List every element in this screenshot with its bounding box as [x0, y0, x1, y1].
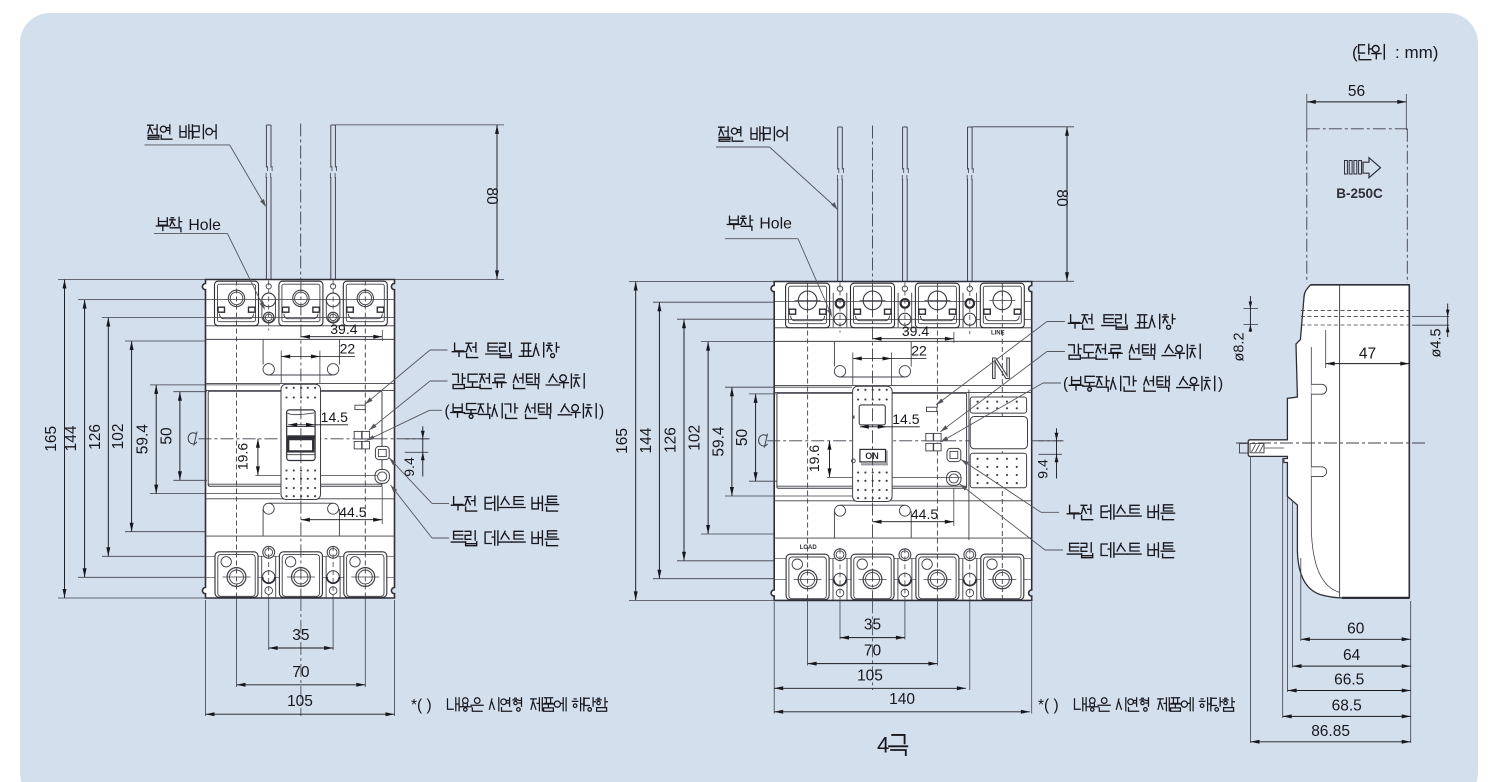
svg-text:39.4: 39.4 [902, 323, 929, 339]
svg-text:66.5: 66.5 [1334, 672, 1364, 689]
svg-text:60: 60 [1347, 620, 1365, 637]
svg-text:Hole: Hole [759, 215, 792, 232]
svg-text:(: ( [445, 403, 451, 420]
svg-text:59.4: 59.4 [710, 426, 727, 457]
svg-text:): ) [599, 403, 604, 420]
svg-text:140: 140 [889, 691, 915, 708]
svg-text:50: 50 [158, 427, 175, 445]
svg-text:35: 35 [864, 617, 881, 634]
svg-text:126: 126 [87, 424, 104, 450]
svg-text:ø8.2: ø8.2 [1232, 332, 1248, 361]
svg-text:19.6: 19.6 [234, 443, 250, 470]
svg-text:80: 80 [1053, 189, 1070, 207]
svg-text:*( ): *( ) [411, 697, 432, 714]
svg-text:68.5: 68.5 [1332, 697, 1362, 714]
svg-text:165: 165 [614, 428, 631, 454]
svg-text:9.4: 9.4 [1035, 459, 1051, 479]
svg-text:(: ( [1063, 376, 1069, 393]
svg-text:44.5: 44.5 [911, 506, 938, 522]
svg-text:70: 70 [864, 643, 882, 660]
svg-text:102: 102 [110, 423, 127, 449]
svg-text:64: 64 [1343, 647, 1361, 664]
svg-text:86.85: 86.85 [1311, 723, 1350, 740]
svg-text:ON: ON [865, 451, 879, 461]
svg-text:47: 47 [1359, 346, 1376, 363]
svg-text:50: 50 [734, 429, 751, 447]
svg-text:LINE: LINE [991, 331, 1005, 337]
svg-text:59.4: 59.4 [135, 424, 152, 455]
svg-text:80: 80 [483, 187, 500, 205]
svg-text:105: 105 [287, 693, 313, 710]
svg-text:14.5: 14.5 [892, 411, 919, 427]
svg-text:: mm): : mm) [1395, 43, 1438, 62]
svg-text:): ) [1218, 376, 1223, 393]
svg-text:144: 144 [638, 427, 655, 453]
svg-text:LOAD: LOAD [800, 545, 818, 551]
svg-text:102: 102 [687, 425, 704, 451]
svg-text:165: 165 [43, 426, 60, 452]
svg-text:9.4: 9.4 [401, 457, 417, 477]
svg-text:19.6: 19.6 [806, 445, 822, 472]
svg-text:ø4.5: ø4.5 [1429, 328, 1445, 357]
svg-text:35: 35 [292, 627, 309, 644]
svg-text:39.4: 39.4 [330, 321, 357, 337]
svg-text:44.5: 44.5 [339, 504, 366, 520]
svg-text:Hole: Hole [188, 217, 221, 234]
svg-text:144: 144 [63, 425, 80, 451]
svg-text:14.5: 14.5 [321, 409, 348, 425]
svg-text:*( ): *( ) [1038, 697, 1059, 714]
svg-text:22: 22 [340, 341, 356, 357]
svg-text:(: ( [1352, 43, 1358, 62]
svg-text:105: 105 [857, 667, 883, 684]
svg-text:22: 22 [911, 343, 927, 359]
svg-text:70: 70 [292, 664, 310, 681]
svg-text:4: 4 [877, 733, 889, 758]
svg-text:56: 56 [1348, 83, 1365, 100]
svg-text:126: 126 [663, 427, 680, 453]
svg-text:B-250C: B-250C [1336, 186, 1383, 201]
